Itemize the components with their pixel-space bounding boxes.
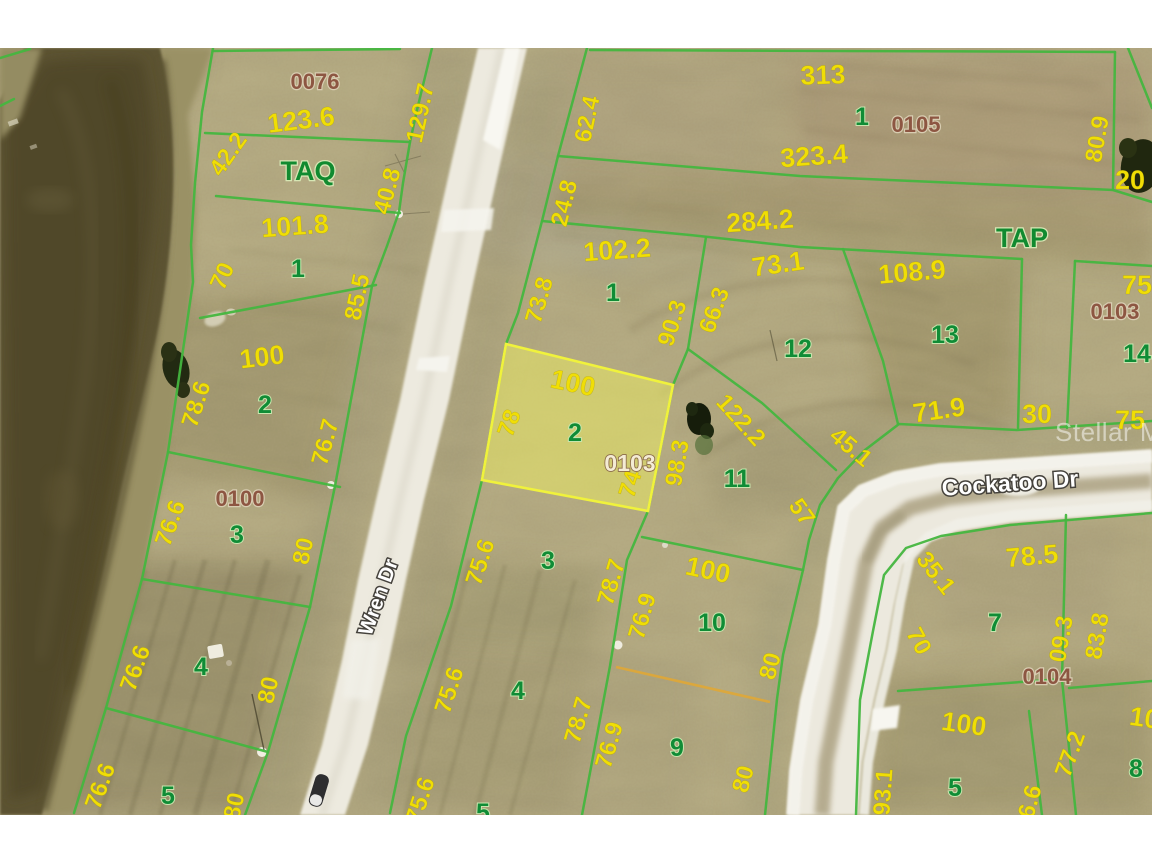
svg-text:108.9: 108.9 bbox=[877, 254, 947, 290]
svg-text:13: 13 bbox=[931, 321, 959, 349]
svg-text:1: 1 bbox=[855, 103, 869, 131]
svg-text:4: 4 bbox=[194, 653, 208, 681]
svg-text:0105: 0105 bbox=[892, 112, 941, 137]
svg-text:5: 5 bbox=[161, 782, 175, 810]
svg-text:101.8: 101.8 bbox=[260, 209, 330, 244]
svg-text:5: 5 bbox=[948, 774, 962, 802]
svg-text:20: 20 bbox=[1115, 165, 1145, 195]
svg-text:14: 14 bbox=[1123, 340, 1151, 368]
svg-text:TAQ: TAQ bbox=[281, 156, 336, 186]
svg-text:10: 10 bbox=[698, 609, 726, 637]
svg-text:9: 9 bbox=[670, 734, 684, 762]
svg-text:0100: 0100 bbox=[216, 486, 265, 511]
svg-text:100: 100 bbox=[940, 706, 989, 742]
svg-text:1: 1 bbox=[291, 255, 305, 283]
svg-text:102.2: 102.2 bbox=[582, 233, 652, 268]
svg-text:7: 7 bbox=[988, 609, 1002, 637]
svg-text:284.2: 284.2 bbox=[725, 204, 795, 239]
svg-text:0104: 0104 bbox=[1023, 664, 1073, 689]
svg-text:323.4: 323.4 bbox=[779, 139, 849, 174]
svg-text:3: 3 bbox=[541, 547, 555, 575]
svg-text:12: 12 bbox=[784, 335, 812, 363]
svg-text:80: 80 bbox=[253, 674, 285, 706]
svg-text:TAP: TAP bbox=[996, 223, 1048, 253]
svg-text:1: 1 bbox=[606, 279, 620, 307]
svg-text:93.1: 93.1 bbox=[868, 768, 898, 816]
svg-text:11: 11 bbox=[724, 465, 751, 493]
svg-text:75: 75 bbox=[1122, 270, 1152, 300]
svg-text:0076: 0076 bbox=[291, 69, 340, 94]
svg-text:Stellar MLS: Stellar MLS bbox=[1055, 417, 1152, 447]
svg-text:80: 80 bbox=[288, 535, 320, 567]
svg-text:30: 30 bbox=[1022, 399, 1052, 429]
svg-text:0103: 0103 bbox=[604, 450, 655, 476]
svg-text:78.5: 78.5 bbox=[1005, 539, 1060, 573]
svg-text:313: 313 bbox=[800, 59, 846, 91]
svg-text:2: 2 bbox=[568, 419, 582, 447]
svg-text:0103: 0103 bbox=[1091, 299, 1140, 324]
svg-text:100: 100 bbox=[238, 339, 286, 374]
svg-text:8: 8 bbox=[1129, 755, 1143, 783]
svg-text:3: 3 bbox=[230, 521, 244, 549]
svg-text:2: 2 bbox=[258, 391, 272, 419]
svg-text:4: 4 bbox=[511, 677, 525, 705]
